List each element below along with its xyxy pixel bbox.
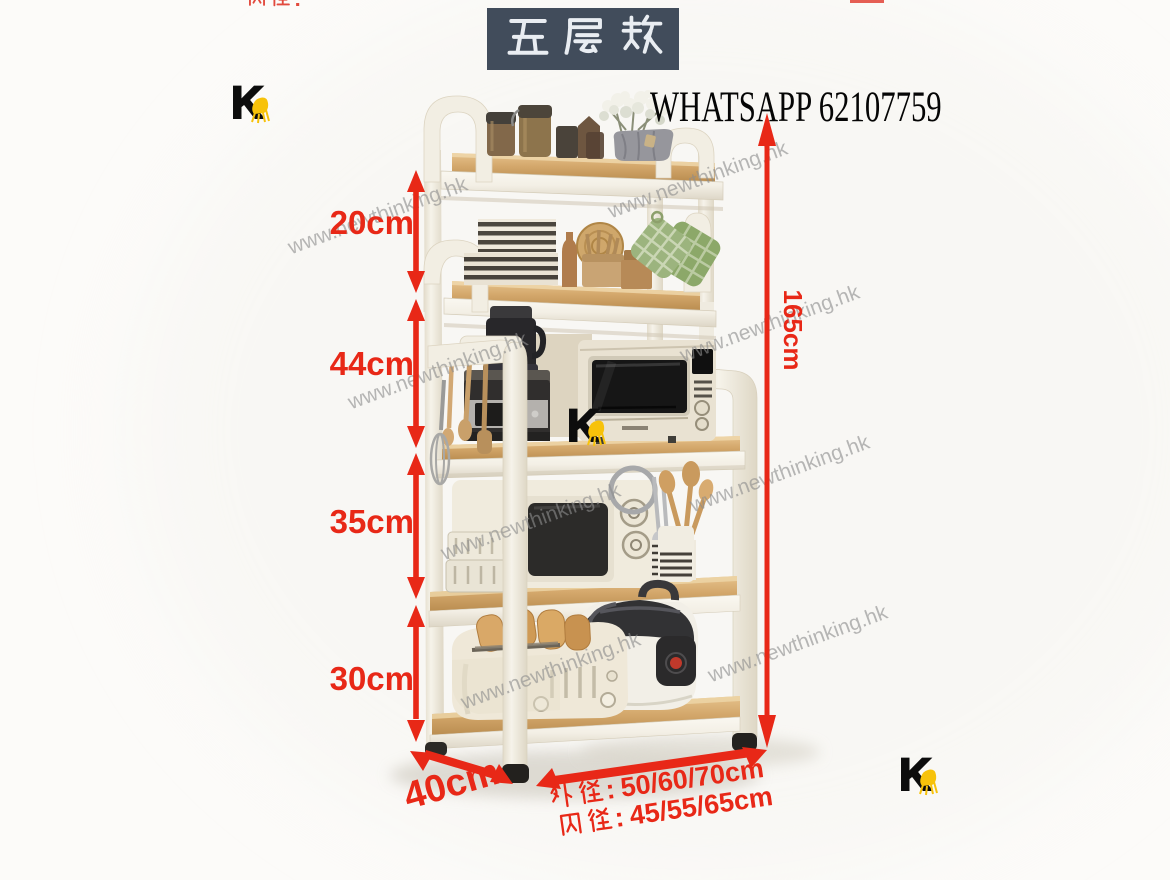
svg-text:165cm: 165cm <box>778 290 808 371</box>
svg-text:20cm: 20cm <box>330 204 414 241</box>
svg-text:WHATSAPP 62107759: WHATSAPP 62107759 <box>650 84 942 131</box>
svg-text:44cm: 44cm <box>330 345 414 382</box>
svg-text:35cm: 35cm <box>330 503 414 540</box>
svg-text:30cm: 30cm <box>330 660 414 697</box>
svg-text::: : <box>294 0 301 11</box>
